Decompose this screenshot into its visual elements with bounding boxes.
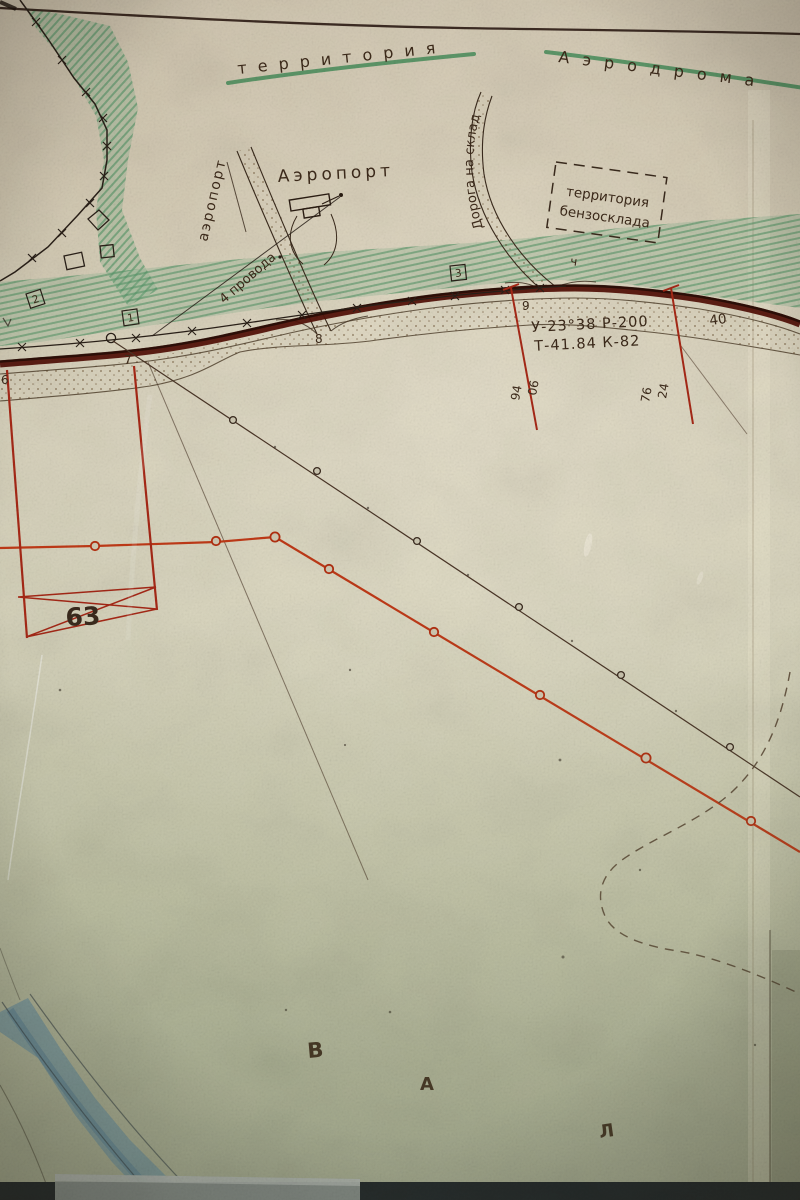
map-photo: т е р р и т о р и я А э р о д р о м а те… bbox=[0, 0, 800, 1200]
vignette bbox=[0, 0, 800, 1200]
